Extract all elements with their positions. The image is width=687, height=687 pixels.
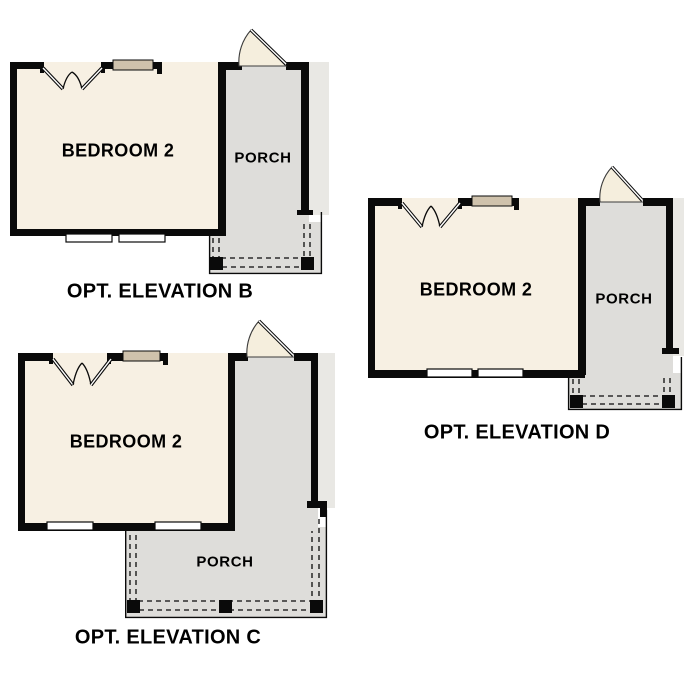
- door-swing-icon: [247, 321, 293, 357]
- window-icon: [47, 522, 93, 530]
- porch-post: [570, 395, 583, 408]
- floor-plan-drawing: [0, 0, 687, 687]
- room-label-porch-c: PORCH: [196, 554, 253, 571]
- porch-post: [210, 257, 223, 270]
- porch-post: [219, 600, 232, 613]
- plan-caption-c: OPT. ELEVATION C: [75, 627, 261, 650]
- wall-opening: [472, 196, 512, 206]
- wall-opening: [113, 60, 153, 70]
- window-icon: [119, 234, 165, 242]
- door-swing-icon: [239, 30, 286, 66]
- roof-overhang: [673, 198, 684, 356]
- porch-floor: [578, 198, 673, 375]
- wall-opening: [123, 351, 160, 361]
- window-icon: [478, 369, 523, 377]
- plan-caption-d: OPT. ELEVATION D: [424, 422, 610, 445]
- window-icon: [427, 369, 472, 377]
- porch-floor: [228, 353, 318, 531]
- porch-post: [127, 600, 140, 613]
- porch-floor: [218, 62, 309, 222]
- plan-caption-b: OPT. ELEVATION B: [67, 281, 253, 304]
- window-icon: [155, 522, 201, 530]
- room-label-porch-b: PORCH: [234, 150, 291, 167]
- room-label-bedroom2-b: BEDROOM 2: [62, 141, 175, 162]
- roof-overhang: [318, 353, 335, 508]
- porch-post: [301, 257, 314, 270]
- room-label-porch-d: PORCH: [595, 291, 652, 308]
- door-swing-icon: [600, 167, 642, 202]
- room-label-bedroom2-d: BEDROOM 2: [420, 280, 533, 301]
- floor-plan-sheet: BEDROOM 2 PORCH OPT. ELEVATION B BEDROOM…: [0, 0, 687, 687]
- room-label-bedroom2-c: BEDROOM 2: [70, 432, 183, 453]
- roof-overhang: [309, 62, 329, 215]
- porch-post: [662, 395, 675, 408]
- window-icon: [66, 234, 112, 242]
- porch-post: [310, 600, 323, 613]
- floor-plan-elevation-c: [18, 321, 335, 618]
